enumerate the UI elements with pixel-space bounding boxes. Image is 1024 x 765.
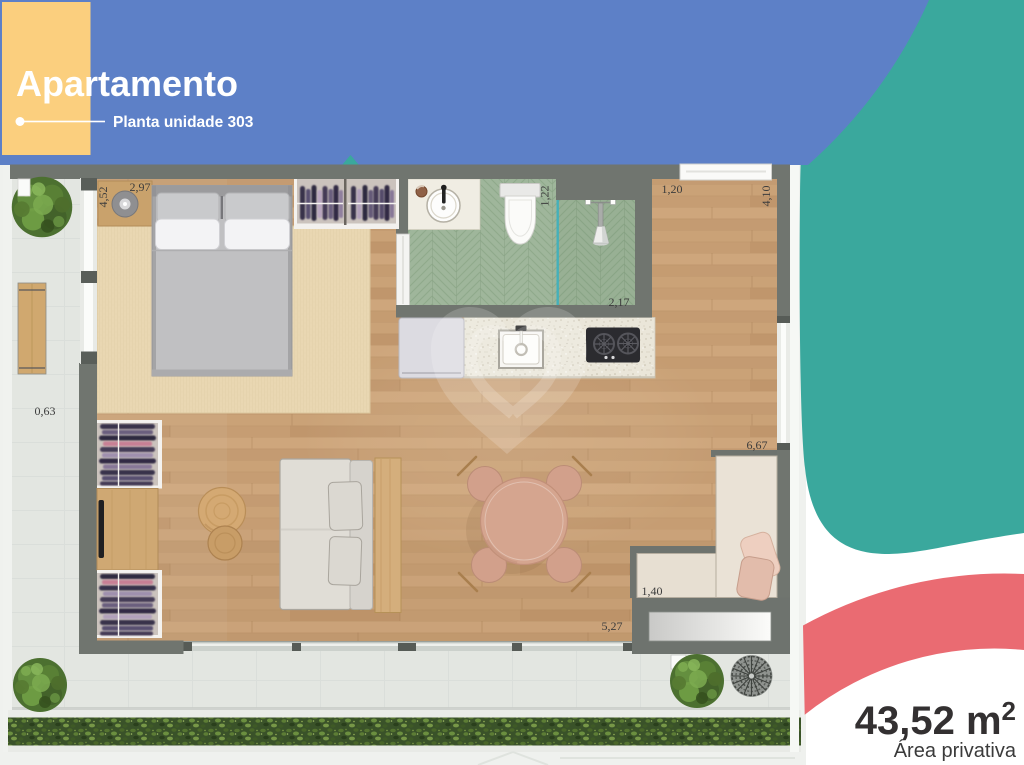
svg-text:Planta unidade 303: Planta unidade 303	[113, 114, 254, 131]
svg-text:43,52 m2: 43,52 m2	[855, 696, 1016, 743]
svg-text:1,20: 1,20	[662, 182, 683, 196]
svg-text:2,97: 2,97	[130, 180, 151, 194]
svg-text:4,10: 4,10	[759, 186, 773, 207]
svg-text:1,22: 1,22	[538, 186, 552, 207]
svg-text:Apartamento: Apartamento	[16, 63, 238, 104]
svg-text:2,17: 2,17	[609, 295, 630, 309]
svg-text:6,67: 6,67	[747, 438, 768, 452]
svg-text:5,27: 5,27	[602, 619, 623, 633]
svg-text:Área privativa: Área privativa	[894, 739, 1017, 762]
svg-text:4,52: 4,52	[96, 187, 110, 208]
svg-text:0,63: 0,63	[35, 404, 56, 418]
svg-text:1,40: 1,40	[642, 584, 663, 598]
